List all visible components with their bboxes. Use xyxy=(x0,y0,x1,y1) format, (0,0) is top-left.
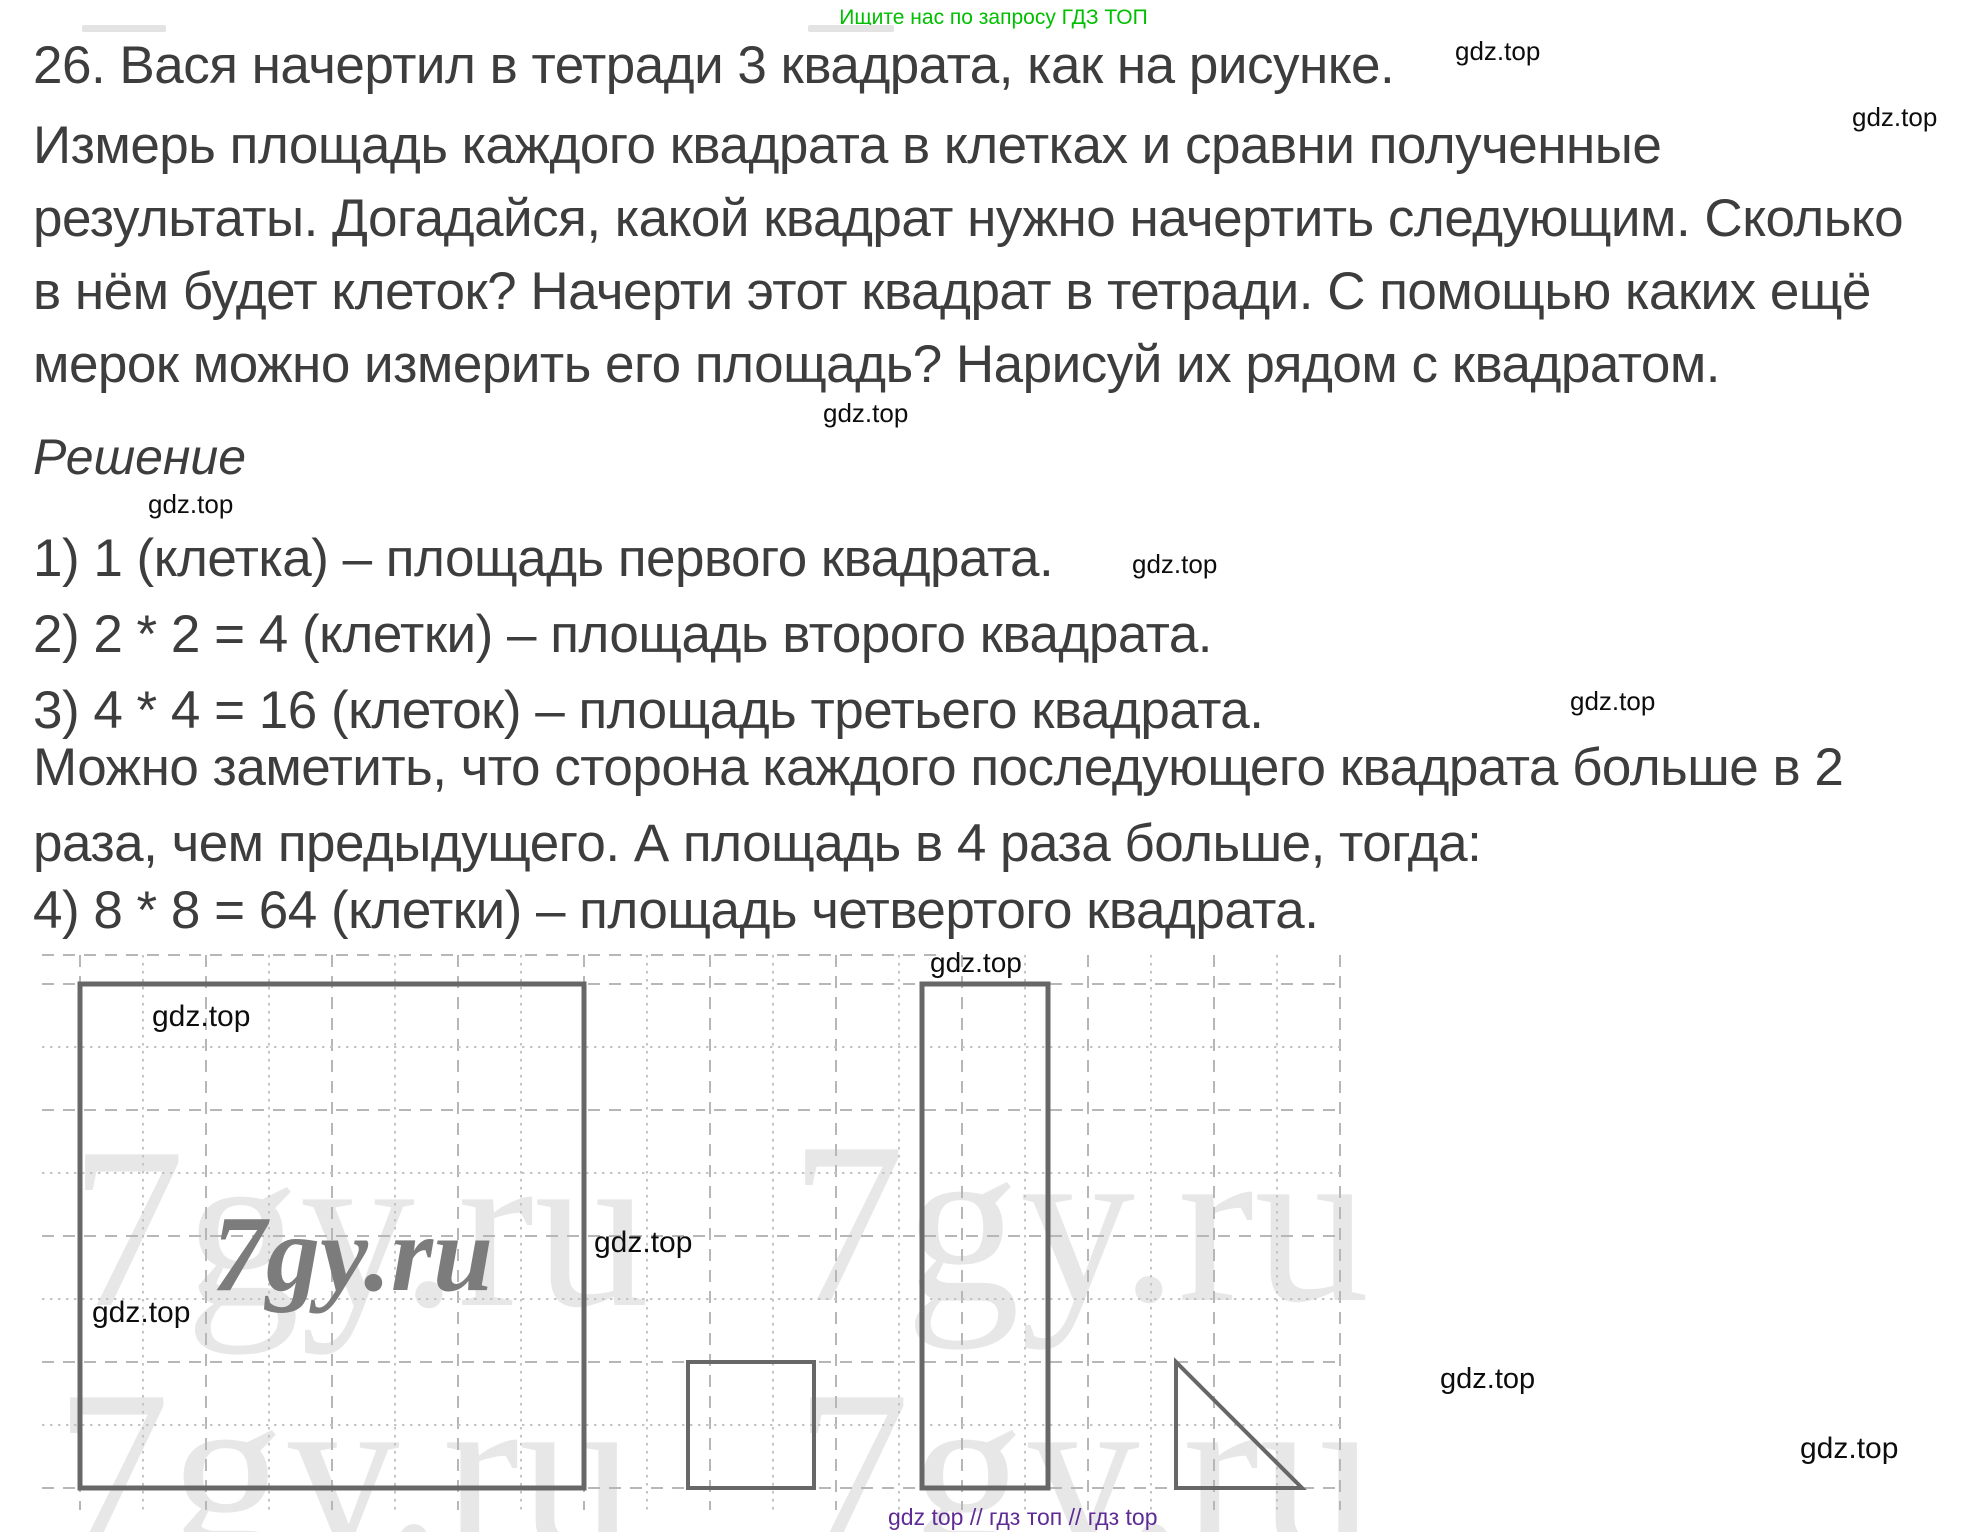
problem-text-line: Измерь площадь каждого квадрата в клетка… xyxy=(33,118,1661,174)
solution-step-2: 2) 2 * 2 = 4 (клетки) – площадь второго … xyxy=(33,607,1212,663)
problem-text-line: в нём будет клеток? Начерти этот квадрат… xyxy=(33,264,1871,320)
squares-figure: 7gy.ru 7gy.ru 7gy.ru 7gy.ru 7gy.ru xyxy=(0,940,1987,1532)
gdz-solution-page: Ищите нас по запросу ГДЗ ТОП 26. Вася на… xyxy=(0,0,1987,1532)
gdz-top-watermark: gdz.top xyxy=(823,398,908,428)
gdz-top-watermark: gdz.top xyxy=(152,1002,250,1032)
problem-text-line: результаты. Догадайся, какой квадрат нуж… xyxy=(33,191,1903,247)
site-watermark: 7gy.ru xyxy=(55,1343,634,1532)
gdz-top-watermark: gdz.top xyxy=(1852,102,1937,132)
promo-banner: Ищите нас по запросу ГДЗ ТОП xyxy=(0,6,1987,30)
gdz-top-watermark: gdz.top xyxy=(1800,1434,1898,1464)
solution-note-line: раза, чем предыдущего. А площадь в 4 раз… xyxy=(33,816,1481,872)
gdz-top-watermark: gdz.top xyxy=(930,948,1022,978)
solution-step-1: 1) 1 (клетка) – площадь первого квадрата… xyxy=(33,531,1053,587)
site-watermark-dark: 7gy.ru xyxy=(212,1195,493,1314)
gdz-top-watermark: gdz.top xyxy=(1440,1364,1535,1394)
site-watermark: 7gy.ru xyxy=(790,1095,1369,1350)
footer-links[interactable]: gdz top // гдз топ // гдз top xyxy=(888,1504,1158,1530)
problem-text-line: мерок можно измерить его площадь? Нарису… xyxy=(33,337,1720,393)
gdz-top-watermark: gdz.top xyxy=(1132,549,1217,579)
gdz-top-watermark: gdz.top xyxy=(1455,36,1540,66)
solution-heading: Решение xyxy=(33,430,246,484)
gdz-top-watermark: gdz.top xyxy=(148,489,233,519)
gdz-top-watermark: gdz.top xyxy=(594,1228,692,1258)
gdz-top-watermark: gdz.top xyxy=(92,1298,190,1328)
solution-step-4: 4) 8 * 8 = 64 (клетки) – площадь четверт… xyxy=(33,883,1319,939)
gdz-top-watermark: gdz.top xyxy=(1570,686,1655,716)
problem-title: 26. Вася начертил в тетради 3 квадрата, … xyxy=(33,38,1394,94)
placeholder-bar xyxy=(82,25,166,32)
placeholder-bar xyxy=(808,25,894,32)
solution-note-line: Можно заметить, что сторона каждого посл… xyxy=(33,740,1843,796)
solution-step-3: 3) 4 * 4 = 16 (клеток) – площадь третьег… xyxy=(33,683,1264,739)
